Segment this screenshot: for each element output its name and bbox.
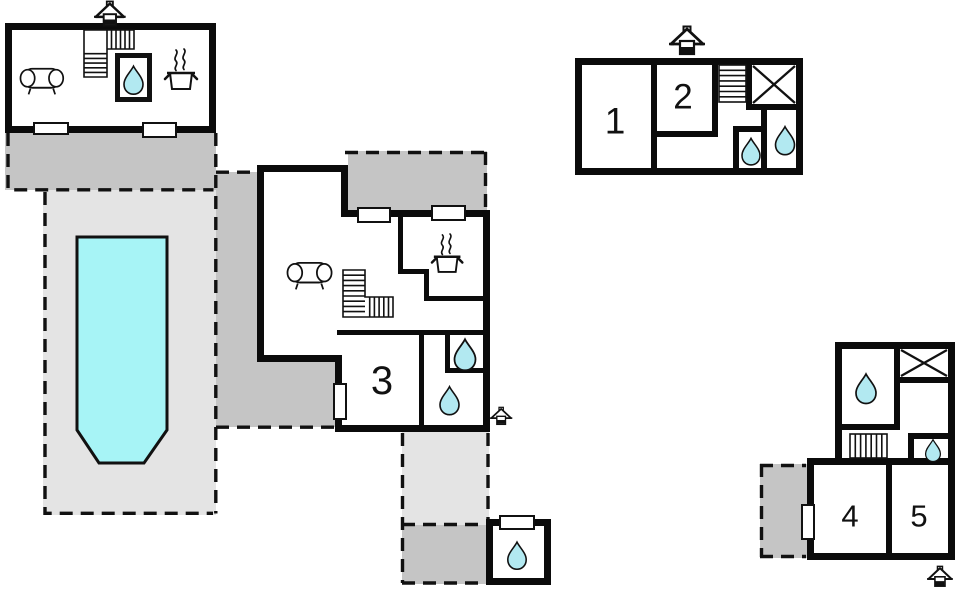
window-x-icon [753, 66, 795, 103]
stairs-icon [850, 434, 887, 458]
swimming-pool [77, 237, 167, 463]
window [802, 505, 814, 539]
water-drop-icon [856, 374, 876, 404]
water-drop-icon [776, 127, 795, 155]
house-entrance-icon [490, 407, 512, 424]
window [358, 208, 390, 222]
room-3-label: 3 [371, 359, 393, 403]
terrace-middle-bottom [402, 525, 486, 584]
window [143, 123, 176, 137]
house-entrance-icon [669, 27, 705, 55]
water-drop-icon [742, 138, 760, 165]
outdoor-areas [5, 133, 807, 584]
terrace-right [760, 464, 807, 558]
window-x-icon [901, 350, 947, 376]
water-drop-icon [926, 440, 941, 462]
window [500, 516, 534, 529]
terrace-middle-top [348, 151, 487, 211]
floor-plan: 3 1 2 4 5 [0, 0, 960, 589]
cooking-pot-icon [165, 49, 197, 89]
sofa-icon [287, 263, 331, 289]
cooking-pot-icon [432, 234, 462, 272]
house-entrance-icon [94, 1, 126, 25]
patio-light-middle [402, 432, 489, 525]
building-annex [486, 516, 551, 585]
water-drop-icon [508, 542, 526, 569]
window [34, 123, 68, 134]
window [334, 384, 346, 419]
water-drop-icon [440, 387, 459, 415]
sofa-icon [20, 69, 63, 95]
room-2-label: 2 [673, 78, 692, 117]
building-top-left [5, 23, 216, 137]
floor-plan-canvas: 3 1 2 4 5 [0, 0, 960, 589]
window [432, 206, 465, 220]
water-drop-icon [455, 339, 476, 370]
room-5-label: 5 [910, 499, 927, 534]
house-entrance-icon [927, 566, 953, 586]
room-1-label: 1 [605, 101, 626, 142]
room-4-label: 4 [841, 499, 858, 534]
building-bottom-right: 4 5 [802, 342, 955, 560]
terrace-strip-middle [216, 172, 341, 427]
interior-walls [337, 217, 483, 425]
stairs-icon [719, 65, 746, 102]
terrace-upper-left [5, 133, 216, 190]
stairs-icon [343, 270, 393, 317]
building-top-right: 1 2 [575, 58, 803, 175]
